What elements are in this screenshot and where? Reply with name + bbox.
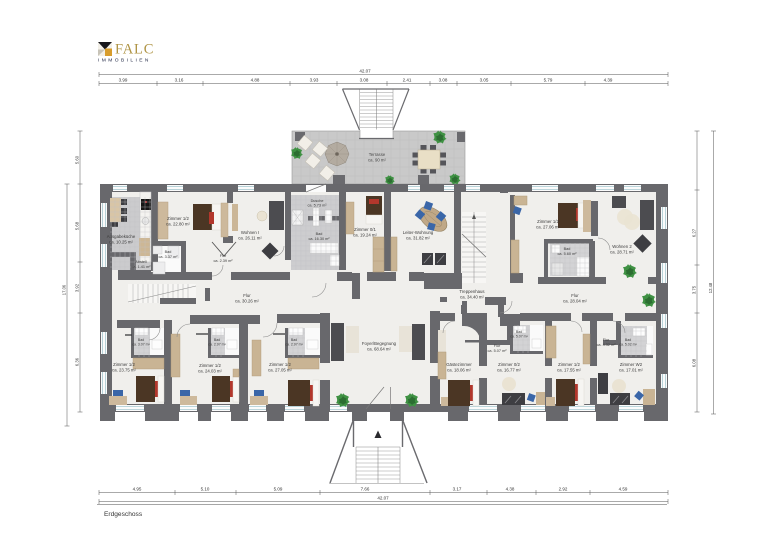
svg-text:3.16: 3.16 — [175, 78, 184, 83]
svg-text:3.99: 3.99 — [119, 78, 128, 83]
svg-text:Wohnen I: Wohnen I — [241, 230, 259, 235]
svg-text:ca. 23.75 m²: ca. 23.75 m² — [112, 368, 136, 373]
svg-text:12.48: 12.48 — [708, 282, 713, 293]
svg-text:ca. 28.71 m²: ca. 28.71 m² — [610, 250, 634, 255]
svg-text:ca. 5.07 m²: ca. 5.07 m² — [510, 335, 528, 339]
svg-text:ca. 68.64 m²: ca. 68.64 m² — [367, 347, 391, 352]
svg-text:Zimmer 1/2: Zimmer 1/2 — [167, 216, 189, 221]
svg-text:Treppenhaus: Treppenhaus — [459, 289, 484, 294]
svg-text:ca. 3.37 m²: ca. 3.37 m² — [159, 255, 179, 259]
svg-text:4.95: 4.95 — [133, 487, 142, 492]
svg-text:Bad: Bad — [291, 338, 297, 342]
svg-text:Bad: Bad — [214, 338, 220, 342]
svg-text:ca. 5.73 m²: ca. 5.73 m² — [308, 204, 328, 208]
svg-text:5.68: 5.68 — [75, 221, 80, 230]
svg-text:ca. 18.06 m²: ca. 18.06 m² — [447, 368, 471, 373]
svg-text:2.92: 2.92 — [559, 487, 568, 492]
svg-text:ca. 2.39 m²: ca. 2.39 m² — [214, 259, 234, 263]
svg-text:5.10: 5.10 — [201, 487, 210, 492]
svg-text:ca. 19.24 m²: ca. 19.24 m² — [353, 233, 377, 238]
svg-text:3.17: 3.17 — [453, 487, 462, 492]
svg-text:Foyer/Begegnung: Foyer/Begegnung — [362, 341, 397, 346]
svg-text:Flur: Flur — [220, 254, 227, 258]
svg-text:Abstell: Abstell — [135, 260, 147, 264]
svg-text:Zimmer 1/2: Zimmer 1/2 — [558, 362, 580, 367]
svg-text:3.05: 3.05 — [480, 78, 489, 83]
svg-text:4.88: 4.88 — [251, 78, 260, 83]
svg-text:42.07: 42.07 — [359, 69, 371, 74]
svg-text:Flur: Flur — [243, 293, 251, 298]
svg-text:ca. 90 m²: ca. 90 m² — [368, 158, 386, 163]
svg-text:5.79: 5.79 — [544, 78, 553, 83]
svg-text:Bad: Bad — [165, 250, 172, 254]
svg-text:ca. 5.60 m²: ca. 5.60 m² — [558, 252, 578, 256]
svg-text:Dusche: Dusche — [311, 199, 324, 203]
svg-text:ca. 2.97 m²: ca. 2.97 m² — [285, 343, 303, 347]
svg-text:ca. 31.82 m²: ca. 31.82 m² — [406, 236, 430, 241]
svg-text:ca. 34.40 m²: ca. 34.40 m² — [460, 295, 484, 300]
svg-text:Zimmer 1/2: Zimmer 1/2 — [537, 219, 559, 224]
svg-text:Bad: Bad — [625, 338, 631, 342]
svg-text:FALC: FALC — [115, 42, 154, 58]
svg-text:Zimmer 1/2: Zimmer 1/2 — [199, 363, 221, 368]
svg-text:ca. 5.02 m²: ca. 5.02 m² — [619, 343, 637, 347]
svg-text:Terrasse: Terrasse — [369, 152, 386, 157]
svg-text:ca. 2.97 m²: ca. 2.97 m² — [208, 343, 226, 347]
svg-text:Flur: Flur — [571, 293, 579, 298]
svg-text:6.27: 6.27 — [692, 228, 697, 237]
svg-text:Bad: Bad — [564, 247, 571, 251]
svg-text:3.08: 3.08 — [439, 78, 448, 83]
svg-text:Bad: Bad — [138, 338, 144, 342]
svg-text:2.41: 2.41 — [403, 78, 412, 83]
svg-text:Leiter-Wohnung: Leiter-Wohnung — [403, 230, 434, 235]
svg-text:5.60: 5.60 — [75, 155, 80, 164]
svg-text:ca. 3.07 m²: ca. 3.07 m² — [132, 343, 150, 347]
svg-text:ca. 30.26 m²: ca. 30.26 m² — [235, 299, 259, 304]
svg-text:Zimmer 0/1: Zimmer 0/1 — [354, 227, 376, 232]
svg-text:Flur: Flur — [603, 338, 610, 342]
svg-text:Erdgeschoss: Erdgeschoss — [104, 511, 143, 518]
svg-text:4.39: 4.39 — [604, 78, 613, 83]
svg-text:3.93: 3.93 — [310, 78, 319, 83]
svg-text:4.59: 4.59 — [619, 487, 628, 492]
svg-text:ca. 16.77 m²: ca. 16.77 m² — [497, 368, 521, 373]
svg-text:Zimmer 0/2: Zimmer 0/2 — [498, 362, 520, 367]
svg-text:3.08: 3.08 — [360, 78, 369, 83]
svg-text:ca. 26.11 m²: ca. 26.11 m² — [238, 236, 262, 241]
svg-text:17.06: 17.06 — [62, 284, 67, 295]
svg-text:ca. 1.41 m²: ca. 1.41 m² — [132, 265, 152, 269]
svg-text:ca. 27.06 m²: ca. 27.06 m² — [536, 225, 560, 230]
svg-text:ca. 16.30 m²: ca. 16.30 m² — [308, 237, 330, 241]
svg-text:Ausgabeküche: Ausgabeküche — [107, 234, 136, 239]
svg-text:7.66: 7.66 — [361, 487, 370, 492]
svg-text:Bad: Bad — [316, 232, 323, 236]
svg-text:Zimmer 1/2: Zimmer 1/2 — [113, 362, 135, 367]
svg-text:ca. 5.07 m²: ca. 5.07 m² — [488, 349, 508, 353]
svg-text:ca. 28.04 m²: ca. 28.04 m² — [563, 299, 587, 304]
svg-text:6.08: 6.08 — [692, 358, 697, 367]
svg-text:6.36: 6.36 — [75, 357, 80, 366]
svg-text:3.92: 3.92 — [75, 283, 80, 292]
svg-text:5.09: 5.09 — [274, 487, 283, 492]
svg-text:Wohnen 2: Wohnen 2 — [612, 244, 632, 249]
svg-text:ca. 10.25 m²: ca. 10.25 m² — [109, 240, 133, 245]
svg-text:3.75: 3.75 — [692, 285, 697, 294]
svg-text:IMMOBILIEN: IMMOBILIEN — [98, 58, 151, 64]
svg-text:ca. 27.05 m²: ca. 27.05 m² — [268, 368, 292, 373]
svg-text:4.38: 4.38 — [506, 487, 515, 492]
svg-text:Gästezimmer: Gästezimmer — [446, 362, 472, 367]
svg-text:Flur: Flur — [494, 344, 501, 348]
svg-text:ca. 24.03 m²: ca. 24.03 m² — [198, 369, 222, 374]
svg-text:Zimmer 1/2: Zimmer 1/2 — [269, 362, 291, 367]
svg-text:ca. 17.55 m²: ca. 17.55 m² — [557, 368, 581, 373]
svg-text:ca. 4.32 m²: ca. 4.32 m² — [597, 343, 617, 347]
svg-text:ca. 17.01 m²: ca. 17.01 m² — [619, 368, 643, 373]
svg-text:Zimmer W2: Zimmer W2 — [620, 362, 643, 367]
svg-text:42.07: 42.07 — [377, 496, 389, 501]
svg-text:Bad: Bad — [516, 330, 522, 334]
svg-text:ca. 22.80 m²: ca. 22.80 m² — [166, 222, 190, 227]
